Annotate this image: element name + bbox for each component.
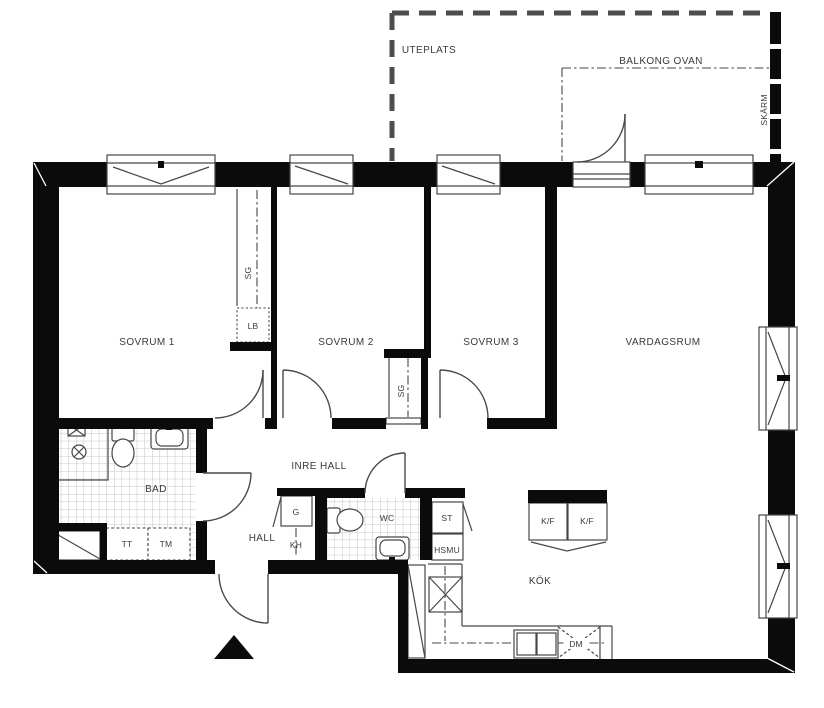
label-uteplats: UTEPLATS bbox=[402, 45, 456, 56]
label-lb: LB bbox=[248, 321, 259, 331]
room-label-wc: WC bbox=[380, 513, 395, 523]
room-label-sovrum2: SOVRUM 2 bbox=[318, 337, 373, 348]
window-vardagsrum-right-lower bbox=[759, 515, 797, 618]
label-sg-closet-2: SG bbox=[396, 385, 406, 398]
screen-wall bbox=[770, 12, 781, 162]
room-label-vardagsrum: VARDAGSRUM bbox=[626, 337, 701, 348]
room-label-hall: HALL bbox=[249, 533, 276, 544]
floorplan-page: UTEPLATS BALKONG OVAN SKÄRM SOVRUM 1 SOV… bbox=[0, 0, 824, 708]
room-label-sovrum1: SOVRUM 1 bbox=[119, 337, 174, 348]
label-kf-left: K/F bbox=[541, 516, 555, 526]
window-vardagsrum-right-upper bbox=[759, 327, 797, 430]
label-kh: KH bbox=[290, 540, 302, 550]
label-tm: TM bbox=[160, 539, 173, 549]
label-g: G bbox=[293, 507, 300, 517]
label-tt: TT bbox=[122, 539, 133, 549]
floorplan-drawing: UTEPLATS BALKONG OVAN SKÄRM SOVRUM 1 SOV… bbox=[0, 0, 824, 708]
label-balkong-ovan: BALKONG OVAN bbox=[619, 56, 703, 67]
label-st: ST bbox=[441, 513, 452, 523]
label-skarm: SKÄRM bbox=[759, 94, 769, 125]
window-sovrum3 bbox=[437, 155, 500, 194]
label-sg-closet-1: SG bbox=[243, 267, 253, 280]
room-label-bad: BAD bbox=[145, 484, 167, 495]
window-sovrum2 bbox=[290, 155, 353, 194]
label-kf-right: K/F bbox=[580, 516, 594, 526]
window-vardagsrum-top bbox=[645, 155, 753, 194]
room-label-kok: KÖK bbox=[529, 575, 551, 587]
label-dm: DM bbox=[569, 639, 583, 649]
balcony-door-threshold bbox=[573, 162, 630, 187]
window-sovrum1 bbox=[107, 155, 215, 194]
room-label-inre-hall: INRE HALL bbox=[291, 461, 346, 472]
label-hsmu: HSMU bbox=[434, 545, 460, 555]
room-label-sovrum3: SOVRUM 3 bbox=[463, 337, 518, 348]
